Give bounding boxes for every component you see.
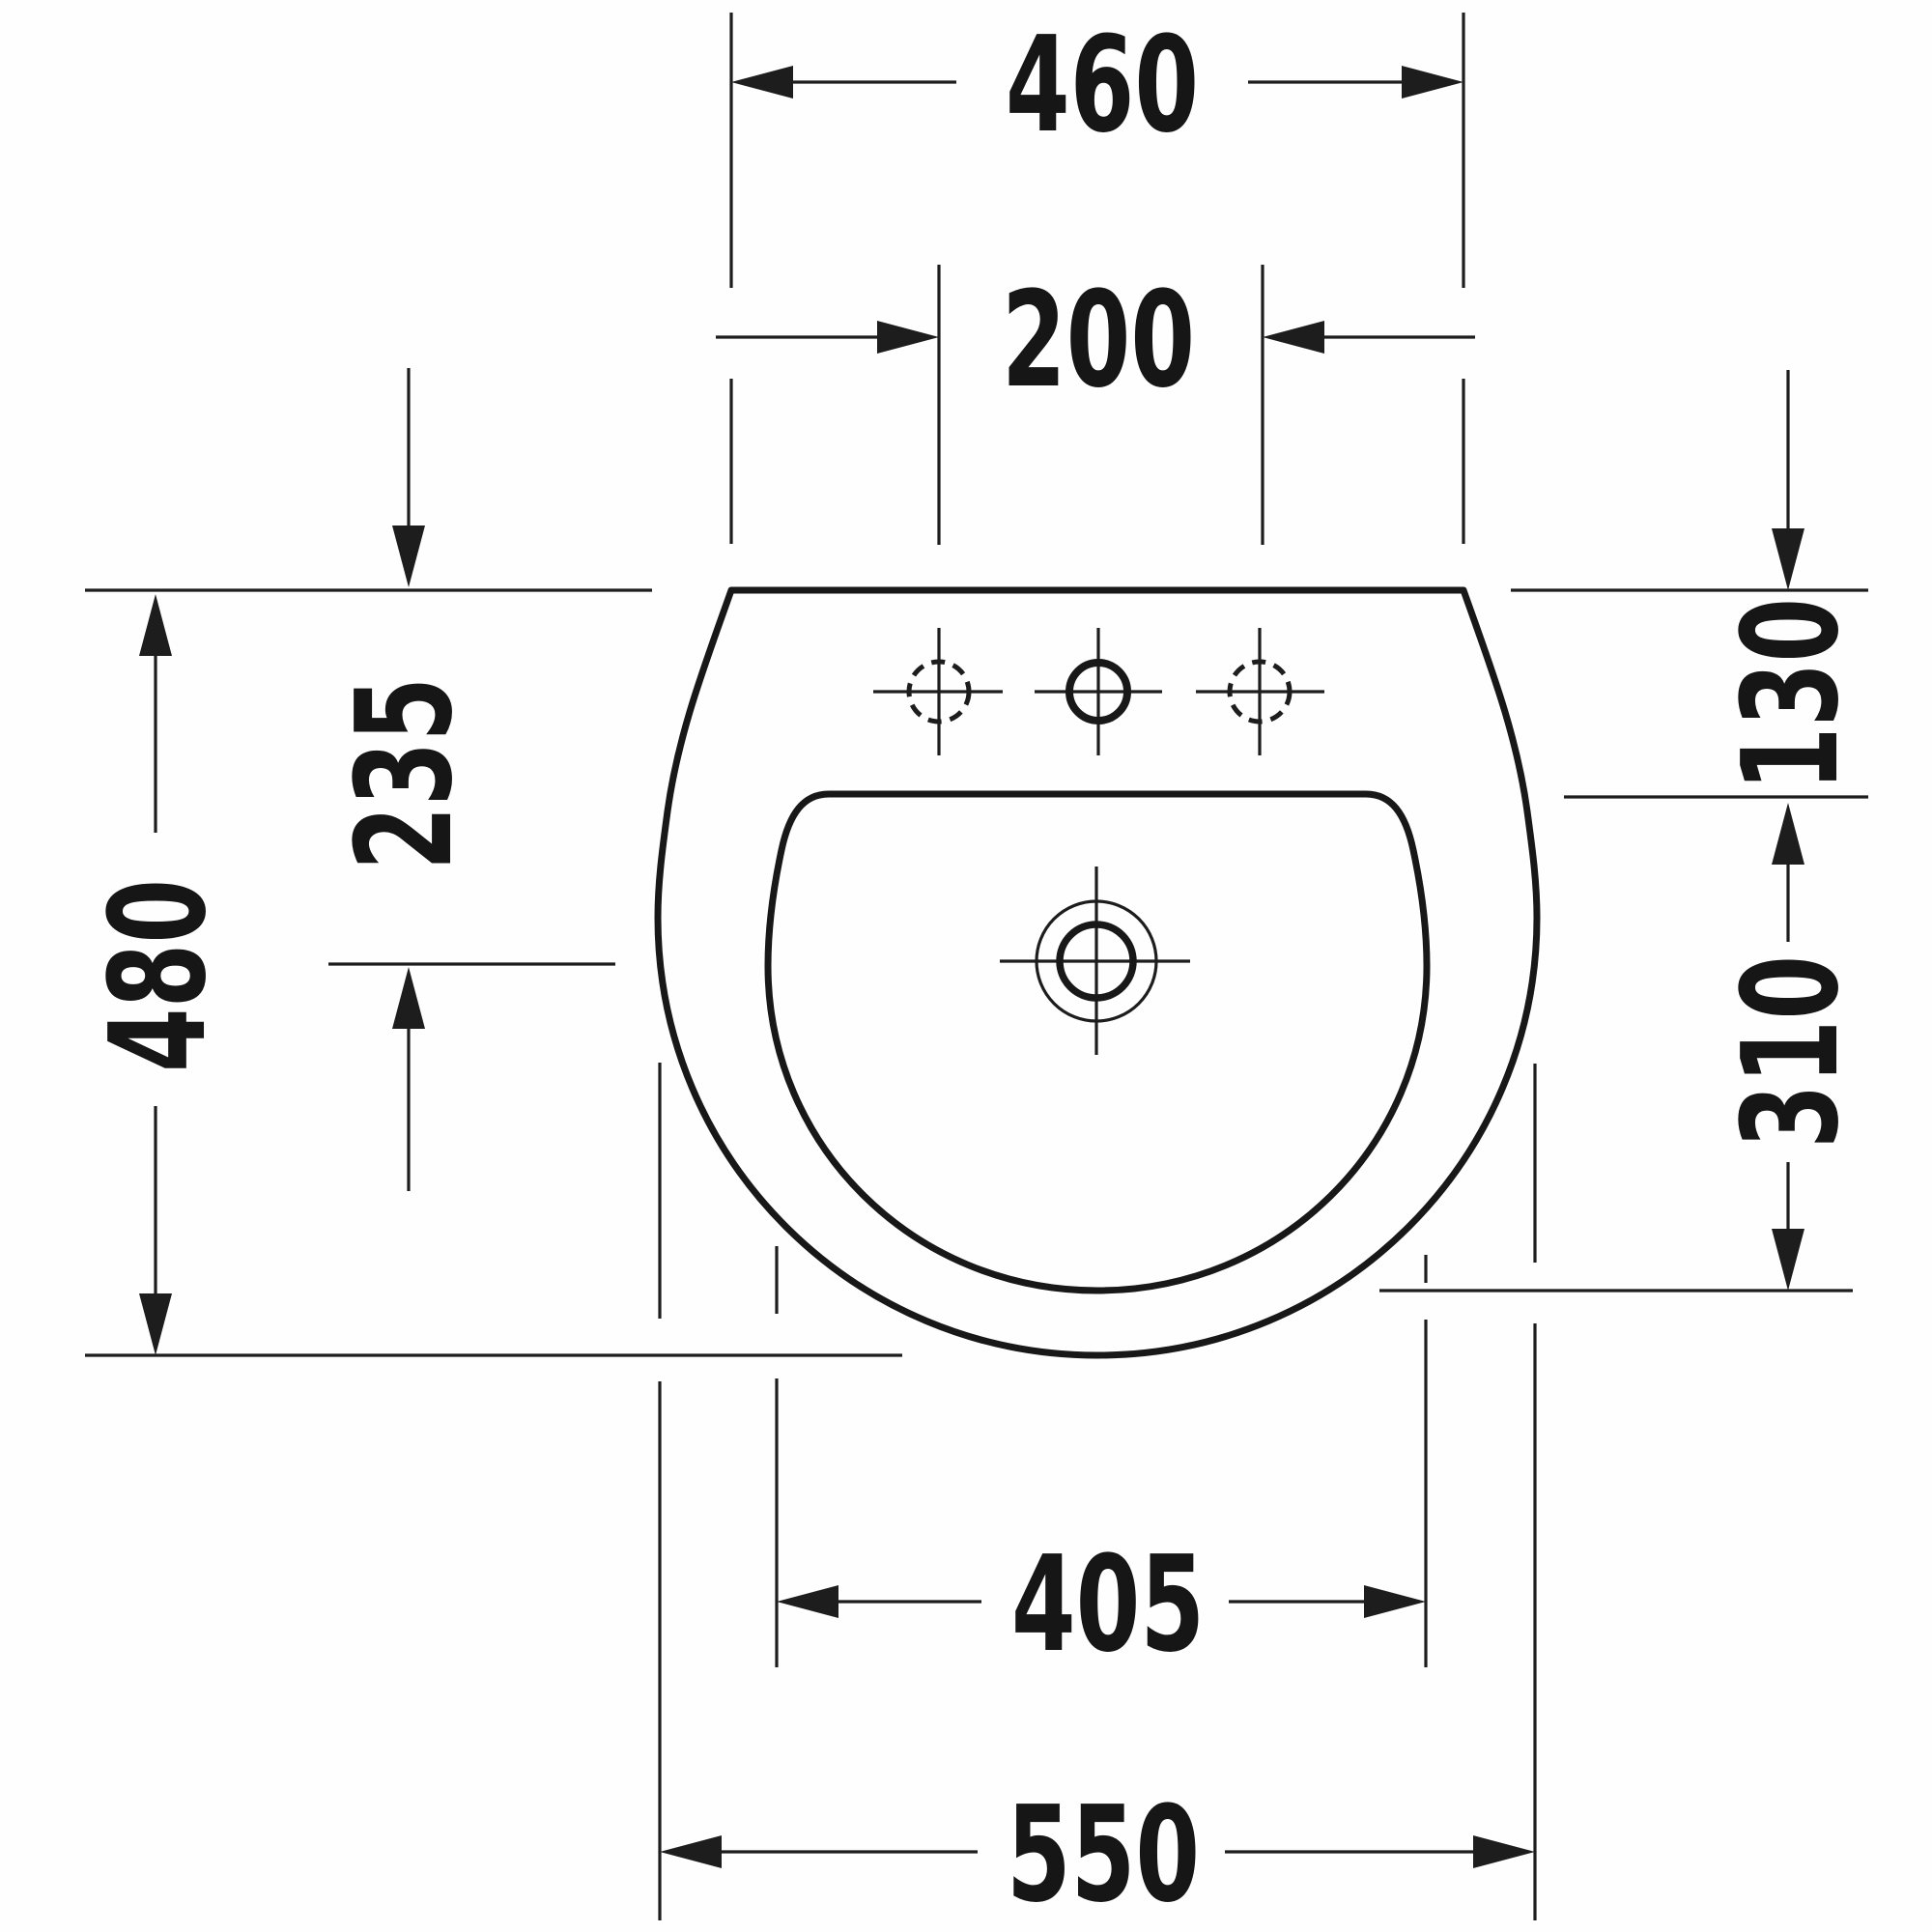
arrow-up-icon xyxy=(139,594,172,656)
dimension-405: 405 xyxy=(777,1527,1426,1682)
arrow-left-icon xyxy=(777,1585,838,1618)
dim-label-460: 460 xyxy=(1006,8,1199,162)
dim-label-550: 550 xyxy=(1007,1777,1200,1932)
dimension-550: 550 xyxy=(660,1777,1535,1932)
dimension-460: 460 xyxy=(731,8,1463,162)
arrow-right-icon xyxy=(1473,1835,1535,1868)
arrow-right-icon xyxy=(1364,1585,1426,1618)
dimension-130: 130 xyxy=(1714,370,1868,791)
dim-label-200: 200 xyxy=(1002,263,1195,417)
drain-group xyxy=(1000,867,1190,1055)
faucet-holes-group xyxy=(873,628,1324,755)
dim-label-405: 405 xyxy=(1011,1527,1205,1682)
dimension-310: 310 xyxy=(1714,803,1868,1291)
dimension-235: 235 xyxy=(327,368,482,1191)
arrow-left-icon xyxy=(660,1835,722,1868)
washbasin-dimension-diagram: 460 200 480 235 130 310 xyxy=(0,0,1932,1932)
dim-label-310: 310 xyxy=(1714,955,1868,1149)
dim-label-130: 130 xyxy=(1714,598,1868,791)
dimension-200: 200 xyxy=(716,263,1475,417)
dim-label-235: 235 xyxy=(327,677,482,870)
arrow-left-icon xyxy=(731,66,793,99)
arrow-right-icon xyxy=(1402,66,1463,99)
dimension-480: 480 xyxy=(81,594,236,1355)
arrow-down-icon xyxy=(392,526,425,587)
arrow-down-icon xyxy=(139,1293,172,1355)
arrow-left-icon xyxy=(1263,321,1324,354)
arrow-down-icon xyxy=(1772,528,1804,590)
technical-drawing-canvas: 460 200 480 235 130 310 xyxy=(0,0,1932,1932)
arrow-up-icon xyxy=(392,967,425,1029)
arrow-up-icon xyxy=(1772,803,1804,865)
arrow-down-icon xyxy=(1772,1229,1804,1291)
arrow-right-icon xyxy=(877,321,939,354)
dim-label-480: 480 xyxy=(81,879,236,1072)
